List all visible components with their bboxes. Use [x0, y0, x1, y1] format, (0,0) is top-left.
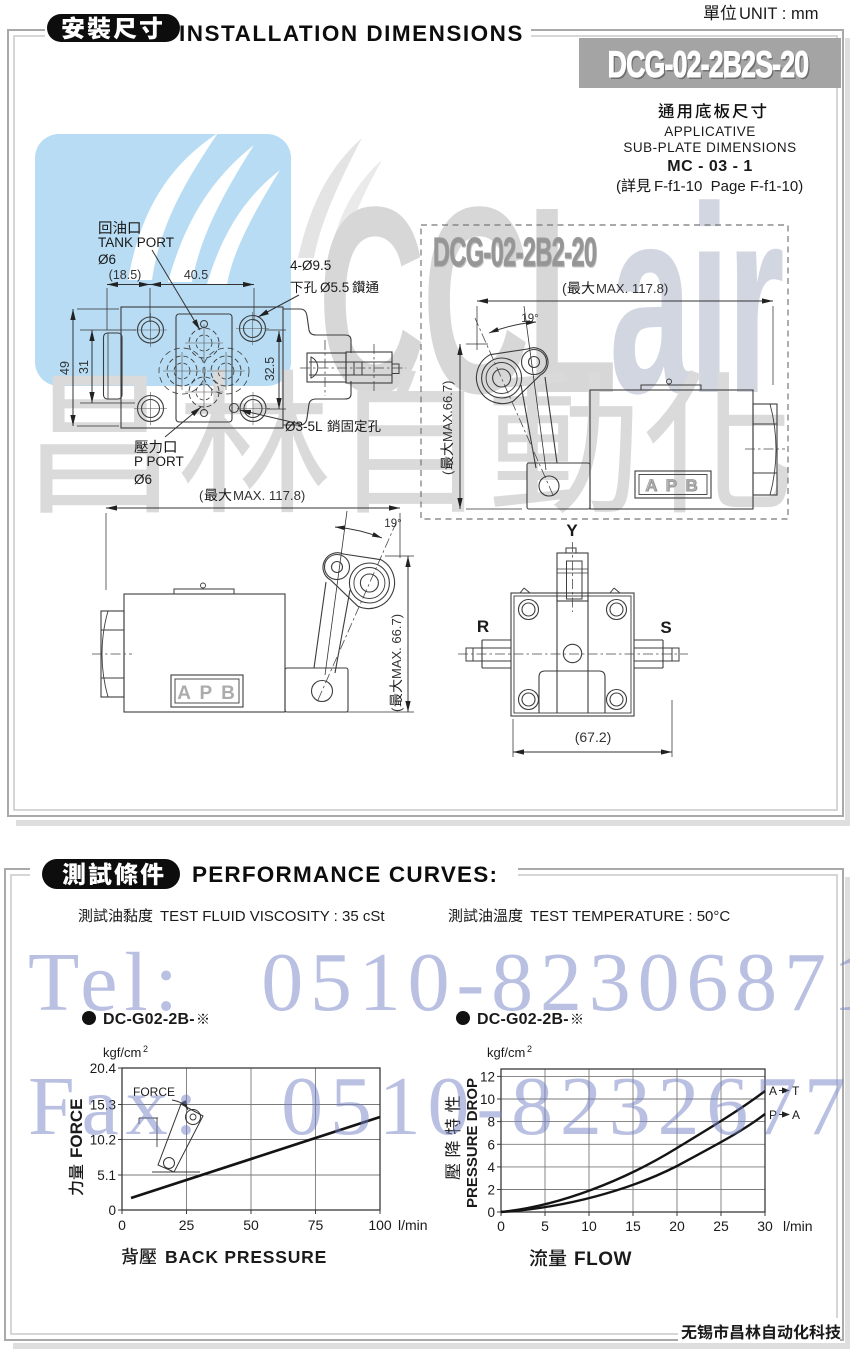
svg-text:UNIT : mm: UNIT : mm [739, 5, 818, 23]
svg-text:l/min: l/min [783, 1218, 813, 1234]
svg-text:MAX. 117.8): MAX. 117.8) [233, 488, 305, 503]
svg-text:50: 50 [243, 1217, 259, 1233]
svg-text:FLOW: FLOW [574, 1249, 632, 1270]
svg-text:4: 4 [487, 1160, 495, 1175]
svg-text:4-Ø9.5: 4-Ø9.5 [290, 258, 331, 273]
svg-text:49: 49 [58, 361, 72, 375]
svg-text:(: ( [562, 280, 567, 296]
svg-text:A P B: A P B [645, 476, 699, 495]
svg-text:5.1: 5.1 [97, 1168, 116, 1183]
svg-text:F-f1-10 Page F-f1-10): F-f1-10 Page F-f1-10) [654, 178, 803, 195]
svg-text:BACK PRESSURE: BACK PRESSURE [165, 1247, 327, 1267]
svg-text:Ø3-5L: Ø3-5L [285, 419, 323, 434]
svg-text:20: 20 [669, 1218, 685, 1234]
svg-text:MC - 03 - 1: MC - 03 - 1 [667, 158, 753, 175]
svg-text:(: ( [389, 707, 404, 712]
svg-text:30: 30 [757, 1218, 773, 1234]
svg-text:TEST TEMPERATURE : 50°C: TEST TEMPERATURE : 50°C [530, 908, 730, 925]
svg-text:(: ( [440, 470, 455, 475]
svg-text:Tel: 0510-82306871: Tel: 0510-82306871 [28, 936, 850, 1029]
svg-text:(18.5): (18.5) [109, 268, 142, 282]
svg-text:32.5: 32.5 [263, 357, 277, 381]
svg-text:0: 0 [497, 1218, 505, 1234]
svg-text:10: 10 [581, 1218, 597, 1234]
svg-text:(67.2): (67.2) [575, 729, 612, 745]
svg-text:DCG-02-2B2S-20: DCG-02-2B2S-20 [608, 44, 809, 85]
svg-text:Ø5.5: Ø5.5 [320, 280, 349, 295]
svg-text:TANK PORT: TANK PORT [98, 235, 174, 250]
svg-text:100: 100 [368, 1217, 392, 1233]
svg-text:Fax: 0510-82326771: Fax: 0510-82326771 [28, 1060, 850, 1153]
svg-text:kgf/cm: kgf/cm [487, 1045, 525, 1060]
svg-text:0: 0 [118, 1217, 126, 1233]
svg-text:SUB-PLATE DIMENSIONS: SUB-PLATE DIMENSIONS [623, 140, 796, 155]
svg-text:PERFORMANCE CURVES:: PERFORMANCE CURVES: [192, 862, 498, 887]
svg-text:kgf/cm: kgf/cm [103, 1045, 141, 1060]
svg-text:0: 0 [487, 1205, 495, 1220]
svg-text:R: R [477, 617, 489, 636]
svg-text:(: ( [199, 488, 204, 503]
svg-text:75: 75 [308, 1217, 324, 1233]
svg-text:5: 5 [541, 1218, 549, 1234]
svg-text:2: 2 [487, 1183, 495, 1198]
svg-text:2: 2 [527, 1044, 532, 1054]
svg-text:P PORT: P PORT [134, 454, 184, 469]
svg-text:19°: 19° [521, 313, 538, 325]
svg-text:l/min: l/min [398, 1217, 428, 1233]
svg-text:Ø6: Ø6 [134, 472, 152, 487]
svg-text:25: 25 [713, 1218, 729, 1234]
svg-text:15: 15 [625, 1218, 641, 1234]
svg-text:40.5: 40.5 [184, 268, 208, 282]
svg-text:19°: 19° [384, 518, 401, 530]
svg-text:25: 25 [179, 1217, 195, 1233]
svg-text:31: 31 [77, 360, 91, 374]
svg-text:2: 2 [143, 1044, 148, 1054]
svg-text:APPLICATIVE: APPLICATIVE [664, 124, 756, 139]
svg-text:S: S [660, 618, 671, 637]
svg-text:Y: Y [566, 521, 578, 540]
svg-text:INSTALLATION DIMENSIONS: INSTALLATION DIMENSIONS [179, 21, 524, 46]
svg-text:TEST FLUID VISCOSITY : 35 cSt: TEST FLUID VISCOSITY : 35 cSt [160, 908, 385, 925]
svg-text:A P B: A P B [177, 683, 237, 704]
svg-text:MAX. 66.7): MAX. 66.7) [389, 614, 404, 679]
svg-text:0: 0 [108, 1203, 116, 1218]
svg-text:Ø6: Ø6 [98, 252, 116, 267]
svg-text:DCG-02-2B2-20: DCG-02-2B2-20 [433, 230, 597, 275]
svg-text:MAX.66.7): MAX.66.7) [440, 381, 455, 442]
svg-text:MAX. 117.8): MAX. 117.8) [596, 281, 668, 296]
svg-text:(: ( [616, 178, 621, 195]
